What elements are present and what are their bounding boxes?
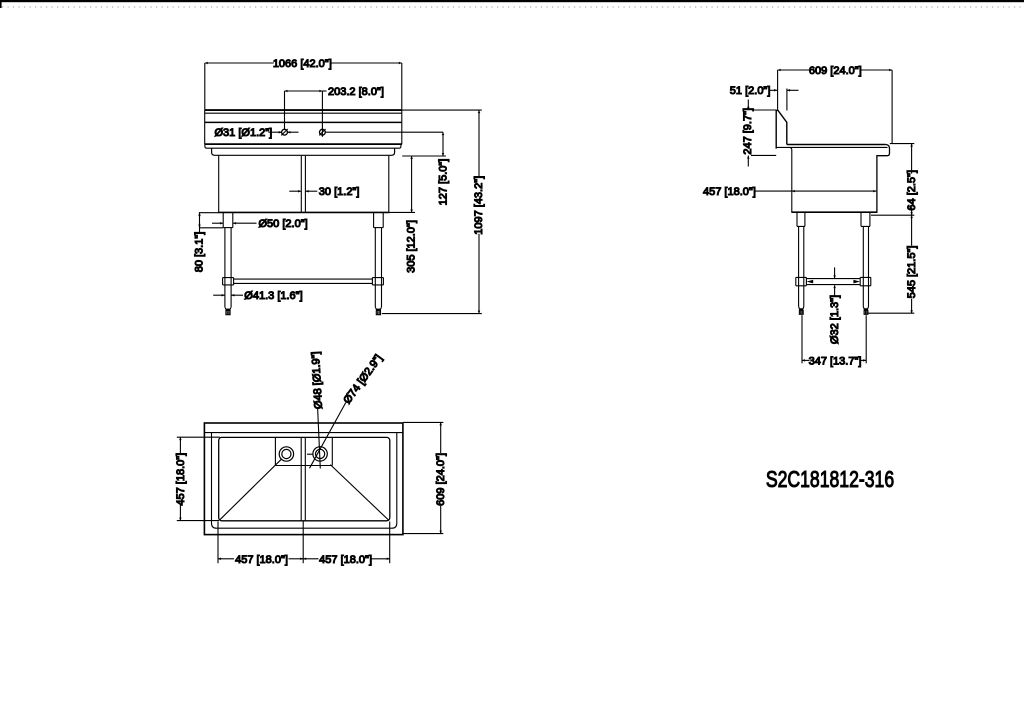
svg-text:609 [24.0"]: 609 [24.0"] (435, 453, 447, 506)
svg-text:347 [13.7"]: 347 [13.7"] (809, 355, 862, 367)
svg-text:1097 [43.2"]: 1097 [43.2"] (473, 176, 485, 235)
svg-text:457 [18.0"]: 457 [18.0"] (235, 554, 288, 566)
svg-text:457 [18.0"]: 457 [18.0"] (703, 186, 756, 198)
svg-text:609 [24.0"]: 609 [24.0"] (809, 65, 862, 77)
svg-text:305 [12.0"]: 305 [12.0"] (405, 220, 417, 273)
svg-text:30 [1.2"]: 30 [1.2"] (319, 186, 360, 198)
svg-text:127 [5.0"]: 127 [5.0"] (438, 159, 450, 206)
svg-text:Ø32 [1.3"]: Ø32 [1.3"] (829, 295, 841, 344)
svg-text:457 [18.0"]: 457 [18.0"] (319, 554, 372, 566)
svg-text:247 [9.7"]: 247 [9.7"] (742, 108, 754, 155)
svg-text:Ø50 [2.0"]: Ø50 [2.0"] (259, 218, 308, 230)
svg-text:545 [21.5"]: 545 [21.5"] (906, 246, 918, 299)
svg-text:80 [3.1"]: 80 [3.1"] (194, 232, 206, 273)
svg-text:S2C181812-316: S2C181812-316 (766, 467, 894, 493)
svg-text:203.2 [8.0"]: 203.2 [8.0"] (328, 86, 384, 98)
svg-text:Ø41.3 [1.6"]: Ø41.3 [1.6"] (244, 290, 302, 302)
svg-text:51 [2.0"]: 51 [2.0"] (730, 85, 771, 97)
svg-text:457 [18.0"]: 457 [18.0"] (175, 453, 187, 506)
svg-text:Ø31 [Ø1.2"]: Ø31 [Ø1.2"] (215, 127, 273, 139)
svg-text:1066 [42.0"]: 1066 [42.0"] (273, 58, 332, 70)
svg-text:Ø74 [Ø2.9"]: Ø74 [Ø2.9"] (341, 353, 385, 407)
svg-text:Ø48 [Ø1.9"]: Ø48 [Ø1.9"] (310, 351, 325, 409)
svg-text:64 [2.5"]: 64 [2.5"] (906, 170, 918, 211)
